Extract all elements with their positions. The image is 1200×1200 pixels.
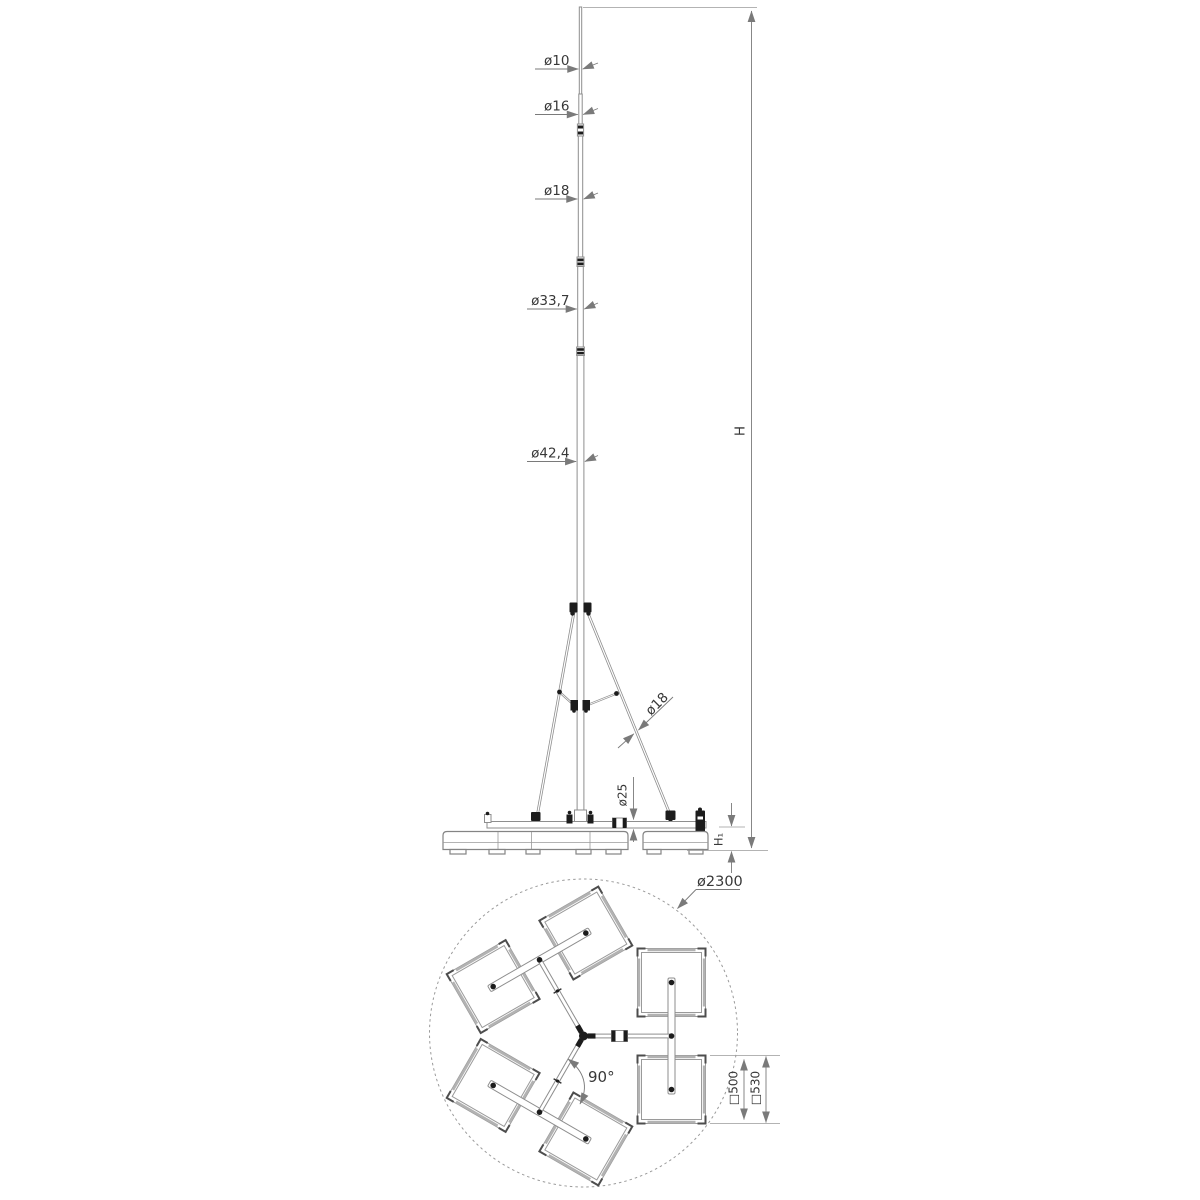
plate-outer-size-label: □530 [749, 1071, 763, 1105]
mast-diameter-label-0: ø10 [544, 53, 569, 69]
mast-diameter-label-1: ø16 [544, 99, 569, 115]
base-height-H1-label: H₁ [712, 833, 726, 846]
beam-end-jack [696, 811, 706, 833]
plate-inner-size-label: □500 [727, 1071, 741, 1105]
elevation-dimensions: H H₁ ø10 ø16 ø18 ø33,7 [527, 8, 768, 874]
circle-diameter-label: ø2300 [697, 874, 743, 890]
mast-diameter-callout-16: ø16 [535, 99, 598, 115]
mast-diameter-label-3: ø33,7 [531, 293, 569, 309]
base-arm-right [588, 949, 706, 1124]
beam-diameter-label: ø25 [616, 784, 630, 807]
circle-diameter-callout: ø2300 [678, 874, 743, 909]
drawing-canvas: H H₁ ø10 ø16 ø18 ø33,7 [0, 0, 1200, 1200]
apex-clamp [570, 603, 578, 613]
mid-clamp [571, 700, 579, 711]
base-beam [487, 822, 706, 829]
angle-annotation: 90° [568, 1059, 615, 1104]
plate-dimensions: □500 □530 [710, 1056, 780, 1124]
angle-label: 90° [588, 1068, 615, 1086]
mast-base-collar [575, 810, 587, 822]
left-foot-fitting [531, 812, 541, 821]
plan-view: 90° ø2300 □500 □530 [430, 874, 781, 1187]
center-hub [579, 1032, 588, 1041]
elevation-view: H H₁ ø10 ø16 ø18 ø33,7 [443, 7, 768, 873]
mast-diameter-callout-10: ø10 [535, 53, 598, 69]
telescopic-mast-technical-drawing: H H₁ ø10 ø16 ø18 ø33,7 [0, 0, 1200, 1200]
mast-diameter-callout-42-4: ø42,4 [527, 446, 598, 462]
leg-diameter-callout: ø18 [618, 690, 673, 748]
base-arm-upper-left [447, 887, 658, 1077]
mast-diameter-label-2: ø18 [544, 183, 569, 199]
base-arm-lower-left [447, 996, 658, 1186]
mast-diameter-callout-33-7: ø33,7 [527, 293, 598, 309]
height-H-label: H [733, 426, 749, 436]
mast-diameter-callout-18: ø18 [535, 183, 598, 199]
telescopic-mast [575, 7, 587, 822]
mast-diameter-label-4: ø42,4 [531, 446, 569, 462]
leg-diameter-label: ø18 [643, 690, 672, 719]
ballast-blocks-left [443, 832, 628, 855]
